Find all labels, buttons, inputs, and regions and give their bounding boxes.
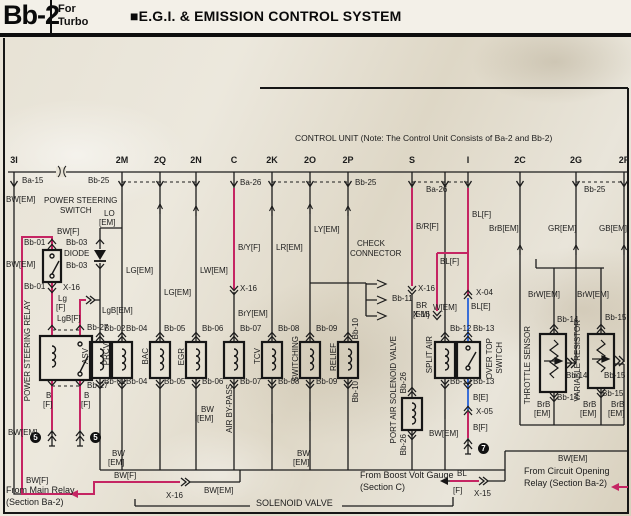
ann-main-relay-1: From Main Relay (6, 486, 75, 495)
conn-bb25-a: Bb-25 (88, 177, 109, 185)
ann-circuit-2: Relay (Section Ba-2) (524, 479, 607, 488)
conn-bb06-bot: Bb-06 (202, 378, 223, 386)
conn-x16-s: X-16 (418, 285, 435, 293)
conn-bb01-bot: Bb-01 (24, 283, 45, 291)
label-connector: CONNECTOR (350, 250, 401, 258)
name-over-top-switch: SWITCH (496, 342, 504, 374)
conn-bb10-bot: Bb-10 (352, 381, 360, 402)
conn-bb07-top: Bb-07 (240, 325, 261, 333)
conn-bb04-bot: Bb-04 (126, 378, 147, 386)
pin-2p: 2P (342, 156, 353, 165)
wire-lo-2: [EM] (99, 219, 115, 227)
name-relief: RELIEF (330, 343, 338, 371)
conn-x16-switch: X-16 (63, 284, 80, 292)
conn-bb26-top: Bb-26 (400, 372, 408, 393)
conn-x16-bottom: X-16 (166, 492, 183, 500)
wire-bw-em-switch: BW[EM] (6, 261, 35, 269)
conn-x04: X-04 (476, 289, 493, 297)
conn-ba26-a: Ba-26 (240, 179, 261, 187)
name-over-top: OVER TOP (486, 338, 494, 379)
name-air-by-pass: AIR BY-PASS (226, 384, 234, 433)
conn-bb25-c: Bb-25 (584, 186, 605, 194)
conn-bb02-bot: Bb-02 (104, 378, 125, 386)
ann-boost-2: (Section C) (360, 483, 405, 492)
wire-lgb-em: LgB[EM] (102, 307, 133, 315)
conn-bb12-top: Bb-12 (450, 325, 471, 333)
conn-bb12-bot: Bb-12 (450, 378, 471, 386)
name-prcv: PRCV (103, 343, 111, 365)
wire-br-f: B/R[F] (416, 223, 439, 231)
wire-lgb-f: LgB[F] (57, 315, 81, 323)
bus-break-icon (56, 166, 66, 177)
note-control-unit: CONTROL UNIT (Note: The Control Unit Con… (295, 134, 552, 143)
name-ps-relay: POWER STEERING RELAY (24, 300, 32, 401)
wire-bry-em: BrY[EM] (238, 310, 268, 318)
conn-x16-c: X-16 (240, 285, 257, 293)
conn-bb07-bot: Bb-07 (240, 378, 261, 386)
name-tcv: TCV (254, 348, 262, 364)
pin-2c: 2C (514, 156, 526, 165)
wire-gr-em: GR[EM] (548, 225, 576, 233)
conn-bb15-wiper: Bb-15 (604, 372, 625, 380)
name-split-air: SPLIT AIR (426, 336, 434, 373)
wire-brb-em-2c: BrB[EM] (489, 225, 519, 233)
wire-b-f-l2: [F] (43, 401, 52, 409)
conn-bb13-top: Bb-13 (473, 325, 494, 333)
wire-bw-em-right-bus: BW[EM] (558, 455, 587, 463)
wire-brw-em-2: BrW[EM] (577, 291, 609, 299)
name-variable-resistor: VARIABLE RESISTOR (574, 320, 582, 402)
name-bac: BAC (142, 348, 150, 364)
pin-2k: 2K (266, 156, 278, 165)
name-switching: SWITCHING (292, 336, 300, 382)
conn-bb25-b: Bb-25 (355, 179, 376, 187)
wire-bl-e: BL[E] (471, 303, 491, 311)
wire-gb-em: GB[EM] (599, 225, 627, 233)
wire-b-f-overtop: B[F] (473, 424, 488, 432)
pin-3i: 3I (10, 156, 18, 165)
label-power-steering: POWER STEERING (44, 197, 117, 205)
conn-bb15-bot: Bb-15 (602, 390, 623, 398)
badge-ground-7: 7 (478, 443, 489, 454)
conn-bb09-top: Bb-09 (316, 325, 337, 333)
ann-circuit-1: From Circuit Opening (524, 467, 610, 476)
conn-x16-branch: X-16 (413, 311, 430, 319)
wire-b-f-r2: [F] (81, 401, 90, 409)
conn-ba26-b: Ba-26 (426, 186, 447, 194)
wire-bw-em-left-bot: BW[EM] (8, 429, 37, 437)
wire-lg-em-2m: LG[EM] (126, 267, 153, 275)
pin-2o: 2O (304, 156, 316, 165)
pin-2m: 2M (116, 156, 129, 165)
pin-i: I (467, 156, 470, 165)
label-diode: DIODE (64, 250, 89, 258)
wire-lw-em: LW[EM] (200, 267, 228, 275)
conn-ba15: Ba-15 (22, 177, 43, 185)
wire-bw-em-split: BW[EM] (429, 430, 458, 438)
conn-bb08-top: Bb-08 (278, 325, 299, 333)
name-egr: EGR (178, 348, 186, 365)
label-switch: SWITCH (60, 207, 92, 215)
wire-bw-f-top: BW[F] (57, 228, 79, 236)
wire-bw-f-bot2: BW[F] (114, 472, 136, 480)
wire-bl-boost: BL (457, 470, 467, 478)
name-asv: ASV (82, 348, 90, 364)
conn-x15: X-15 (474, 490, 491, 498)
wire-brb-3b: [EM] (608, 410, 624, 418)
wire-b-e: B[E] (473, 394, 488, 402)
name-throttle-sensor: THROTTLE SENSOR (524, 326, 532, 404)
conn-bb15-top: Bb-15 (605, 314, 626, 322)
pin-2q: 2Q (154, 156, 166, 165)
ann-main-relay-2: (Section Ba-2) (6, 498, 64, 507)
wire-w-em: W[EM] (433, 304, 457, 312)
conn-bb06-top: Bb-06 (202, 325, 223, 333)
pin-2n: 2N (190, 156, 202, 165)
wire-by-f: B/Y[F] (238, 244, 260, 252)
conn-bb10-top: Bb-10 (352, 318, 360, 339)
wire-bw-em-bottom: BW[EM] (204, 487, 233, 495)
conn-bb05-top: Bb-05 (164, 325, 185, 333)
wire-bl-f-branch: BL[F] (440, 258, 459, 266)
wire-lr-em: LR[EM] (276, 244, 303, 252)
pin-2f: 2F (619, 156, 630, 165)
conn-bb05-bot: Bb-05 (164, 378, 185, 386)
conn-bb01-top: Bb-01 (24, 239, 45, 247)
wire-brw-em-1: BrW[EM] (528, 291, 560, 299)
wire-lg-f-2: [F] (56, 304, 65, 312)
wire-bw-em-top: BW[EM] (6, 196, 35, 204)
wire-bw-em-bus2b: [EM] (197, 415, 213, 423)
conn-bb26-bot: Bb-26 (400, 434, 408, 455)
label-check: CHECK (357, 240, 385, 248)
pin-2g: 2G (570, 156, 582, 165)
conn-bb02-top: Bb-02 (104, 325, 125, 333)
wire-bl-f-main: BL[F] (472, 211, 491, 219)
pin-s: S (409, 156, 415, 165)
conn-bb11: Bb-11 (392, 295, 413, 303)
pin-c: C (231, 156, 238, 165)
diode-symbol (94, 250, 106, 261)
conn-bb04-top: Bb-04 (126, 325, 147, 333)
check-connector-symbol (377, 280, 386, 320)
conn-bb03-top: Bb-03 (66, 239, 87, 247)
wire-brb-2b: [EM] (580, 410, 596, 418)
conn-bb09-bot: Bb-09 (316, 378, 337, 386)
wire-brb-1b: [EM] (534, 410, 550, 418)
wire-bw-em-bus1b: [EM] (108, 459, 124, 467)
name-port-air: PORT AIR SOLENOID VALVE (390, 336, 398, 443)
badge-ground-5b: 5 (90, 432, 101, 443)
wire-bw-em-bus3b: [EM] (293, 459, 309, 467)
wire-bl-boost-f: [F] (453, 487, 462, 495)
conn-x05: X-05 (476, 408, 493, 416)
conn-bb13-bot: Bb-13 (473, 378, 494, 386)
ann-boost-1: From Boost Volt Gauge (360, 471, 454, 480)
wire-lg-em-2q: LG[EM] (164, 289, 191, 297)
ann-solenoid-valve: SOLENOID VALVE (256, 499, 333, 508)
conn-bb03-bot: Bb-03 (66, 262, 87, 270)
wire-ly-em: LY[EM] (314, 226, 340, 234)
